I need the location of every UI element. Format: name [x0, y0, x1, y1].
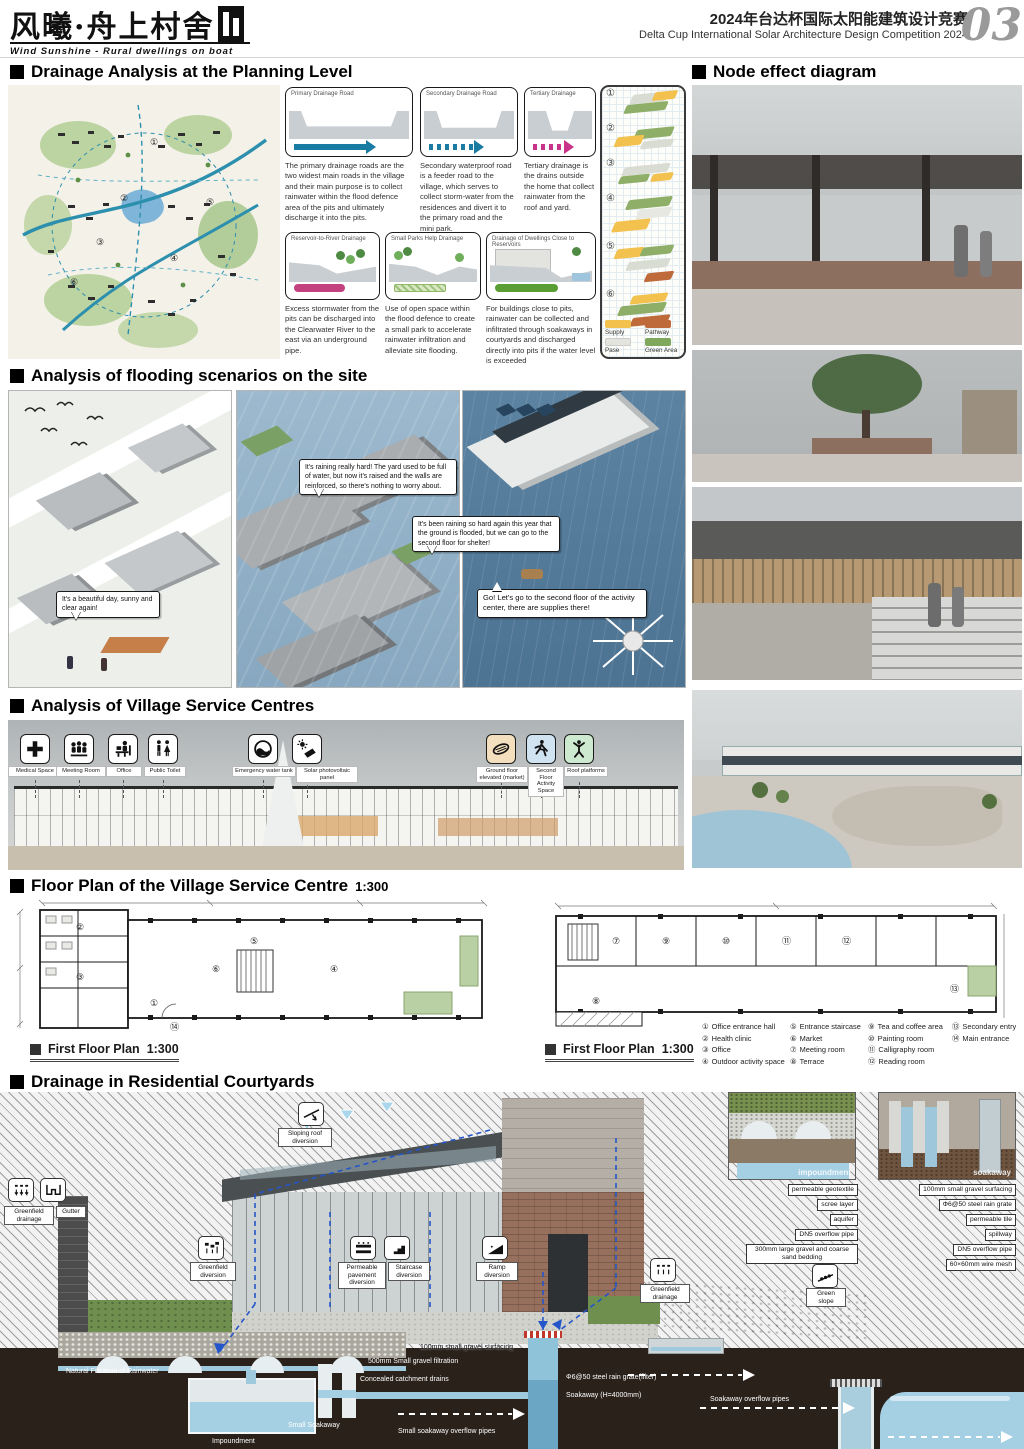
title-square-icon [10, 369, 24, 383]
strip-legend: Supply Pathway Pase Green Area [605, 320, 681, 354]
public-toilet-icon [148, 734, 178, 764]
drainage-layers-strip: ① ② ③ ④ ⑤ ⑥ Supply Pathway [600, 85, 686, 359]
card-secondary-drainage: Secondary Drainage Road Secondary waterp… [420, 87, 518, 234]
dashed-pink-arrow [533, 144, 565, 150]
logo-chinese: 风曦·舟上村舍 [10, 2, 214, 46]
building-logo-icon [218, 6, 244, 42]
node-photo-pergola [692, 85, 1022, 345]
svg-text:⑧: ⑧ [592, 996, 600, 1006]
speech-bubble-flooded: It's been raining so hard again this yea… [412, 516, 560, 552]
speech-bubble-sunny: It's a beautiful day, sunny and clear ag… [56, 591, 160, 618]
emergency-water-tank-icon [248, 734, 278, 764]
meeting-room-icon [64, 734, 94, 764]
diagram-tertiary: Tertiary Drainage [524, 87, 596, 157]
label-small-soakaway: Small Soakaway [288, 1422, 340, 1429]
person-figure [67, 656, 73, 669]
greenfield-diversion-icon [198, 1236, 224, 1260]
greenfield-drainage-icon [8, 1178, 34, 1202]
card-tertiary-drainage: Tertiary Drainage Tertiary drainage is t… [524, 87, 596, 213]
office-icon [108, 734, 138, 764]
svg-text:⑨: ⑨ [662, 936, 670, 946]
icon-label: Second Floor Activity Space [528, 766, 564, 797]
boat-shape [521, 569, 543, 579]
label-concealed-drains: Concealed catchment drains [360, 1376, 449, 1383]
plan-legend-col-2: ⑤Entrance staircase ⑥Market ⑦Meeting roo… [790, 1022, 861, 1067]
label-greenfield-drainage: Greenfield drainage [4, 1206, 54, 1225]
ground-floor-elevated-icon [486, 734, 516, 764]
inset-impoundment-labels: permeable geotextile scree layer aquifer… [700, 1184, 858, 1264]
label-gravel-filtration: 500mm Small gravel filtration [368, 1358, 458, 1365]
label-green-slope: Green slope [806, 1288, 846, 1307]
diagram-reservoir-river: Reservoir-to-River Drainage [285, 232, 380, 300]
village-drainage-map: ① ② ③ ④ ⑤ ⑥ [8, 85, 280, 359]
label-impoundment: Impoundment [212, 1438, 255, 1445]
section-title-courtyards: Drainage in Residential Courtyards [10, 1072, 314, 1092]
competition-title-cn: 2024年台达杯国际太阳能建筑设计竞赛 [639, 8, 968, 29]
diagram-secondary-road: Secondary Drainage Road [420, 87, 518, 157]
roof-platforms-icon [564, 734, 594, 764]
map-marker: ③ [96, 237, 104, 248]
section-title-drainage: Drainage Analysis at the Planning Level [10, 62, 353, 82]
competition-title: 2024年台达杯国际太阳能建筑设计竞赛 Delta Cup Internatio… [639, 8, 968, 41]
icon-label: Roof platforms [564, 766, 608, 777]
permeable-pavement-icon [350, 1236, 376, 1260]
medical-space-icon [20, 734, 50, 764]
birds-icon [17, 397, 137, 457]
label-overflow-pipes: Soakaway overflow pipes [710, 1396, 789, 1403]
road-section-shape [424, 111, 514, 139]
node-photo-courtyard-tree [692, 350, 1022, 482]
icon-label: Meeting Room [56, 766, 106, 777]
svg-text:⑤: ⑤ [250, 936, 258, 946]
plan-label-left: First Floor Plan 1:300 [30, 1042, 179, 1062]
person-figure [101, 658, 107, 671]
card-text: Excess stormwater from the pits can be d… [285, 304, 380, 356]
terrain-shape [289, 254, 376, 282]
competition-title-en: Delta Cup International Solar Architectu… [639, 29, 968, 41]
logo-english: Wind Sunshine - Rural dwellings on boat [10, 42, 250, 57]
icon-label: Solar photovoltaic panel [296, 766, 358, 783]
diagram-dwellings: Drainage of Dwellings Close to Reservoir… [486, 232, 596, 300]
svg-text:⑪: ⑪ [782, 936, 791, 946]
svg-text:④: ④ [330, 964, 338, 974]
water-shape [572, 273, 590, 281]
card-text: The primary drainage roads are the two w… [285, 161, 413, 224]
section-title-floorplan: Floor Plan of the Village Service Centre… [10, 876, 388, 896]
section-title-node: Node effect diagram [692, 62, 876, 82]
first-floor-plan-right: ⑦ ⑨ ⑩ ⑪ ⑫ ⑧ ⑬ [538, 900, 1014, 1040]
svg-text:⑬: ⑬ [950, 984, 959, 994]
hatched-green-bar [394, 284, 446, 292]
card-text: Tertiary drainage is the drains outside … [524, 161, 596, 213]
icon-label: Ground floor elevated (market) [476, 766, 528, 783]
inset-impoundment-detail: impoundment [728, 1092, 856, 1180]
card-small-parks: Small Parks Help Drainage Use of open sp… [385, 232, 481, 356]
icon-label: Emergency water tank [232, 766, 296, 777]
card-dwellings-reservoirs: Drainage of Dwellings Close to Reservoir… [486, 232, 596, 367]
map-marker: ① [150, 137, 158, 148]
title-square-icon [10, 1075, 24, 1089]
card-reservoir-river: Reservoir-to-River Drainage Excess storm… [285, 232, 380, 356]
solid-blue-arrow [294, 144, 367, 150]
node-photo-aerial [692, 690, 1022, 868]
title-square-icon [10, 65, 24, 79]
inset-soakaway-labels: 100mm small gravel surfacing Φ6@50 steel… [858, 1184, 1016, 1271]
plan-label-right: First Floor Plan 1:300 [545, 1042, 694, 1062]
svg-text:⑭: ⑭ [170, 1022, 179, 1032]
title-square-icon [10, 699, 24, 713]
node-photo-stairs [692, 487, 1022, 680]
label-small-overflow: Small soakaway overflow pipes [398, 1428, 495, 1435]
header: 风曦·舟上村舍 Wind Sunshine - Rural dwellings … [0, 0, 1024, 58]
green-slope-icon [812, 1264, 838, 1288]
svg-text:⑩: ⑩ [722, 936, 730, 946]
svg-text:③: ③ [76, 972, 84, 982]
plan-scale: 1:300 [355, 879, 388, 894]
title-square-icon [10, 879, 24, 893]
flood-panel-sunny [8, 390, 232, 688]
speech-bubble-go: Go! Let's go to the second floor of the … [477, 589, 647, 618]
ramp-icon [482, 1236, 508, 1260]
plan-legend-col-1: ①Office entrance hall ②Health clinic ③Of… [702, 1022, 785, 1067]
staircase-icon [384, 1236, 410, 1260]
card-primary-drainage: Primary Drainage Road The primary draina… [285, 87, 413, 224]
speech-bubble-raining: It's raining really hard! The yard used … [299, 459, 457, 495]
section-title-service: Analysis of Village Service Centres [10, 696, 314, 716]
label-staircase: Staircase diversion [388, 1262, 430, 1281]
gutter-icon [40, 1178, 66, 1202]
map-marker: ② [120, 193, 128, 204]
inset-soakaway-detail: soakaway [878, 1092, 1016, 1180]
diagram-small-parks: Small Parks Help Drainage [385, 232, 481, 300]
label-soakaway-h: Soakaway (H=4000mm) [566, 1392, 641, 1399]
label-natural-filtration: Natural Filtration of Rainwater [66, 1368, 159, 1375]
icon-label: Office [106, 766, 142, 777]
label-permeable: Permeable pavement diversion [338, 1262, 386, 1289]
card-text: Use of open space within the flood defen… [385, 304, 481, 356]
map-marker: ⑥ [70, 277, 78, 288]
solar-panel-icon [292, 734, 322, 764]
page-number: 03 [961, 0, 1022, 51]
sloping-roof-icon [298, 1102, 324, 1126]
map-marker: ④ [170, 253, 178, 264]
svg-text:⑦: ⑦ [612, 936, 620, 946]
greenfield-drainage-right-icon [650, 1258, 676, 1282]
card-text: Secondary waterproof road is a feeder ro… [420, 161, 518, 234]
label-greenfield-diversion: Greenfield diversion [190, 1262, 236, 1281]
road-section-shape [528, 111, 592, 139]
label-gutter: Gutter [56, 1206, 86, 1218]
title-square-icon [692, 65, 706, 79]
map-marker: ⑤ [206, 197, 214, 208]
plan-legend-col-3: ⑨Tea and coffee area ⑩Painting room ⑪Cal… [868, 1022, 943, 1067]
poster-page: 风曦·舟上村舍 Wind Sunshine - Rural dwellings … [0, 0, 1024, 1449]
plan-legend-col-4: ⑬Secondary entry ⑭Main entrance [952, 1022, 1016, 1043]
dashed-blue-arrow [429, 144, 475, 150]
svg-text:①: ① [150, 998, 158, 1008]
icon-label: Medical Space [8, 766, 62, 777]
green-bar [495, 284, 558, 292]
svg-text:⑫: ⑫ [842, 936, 851, 946]
svg-text:②: ② [76, 922, 84, 932]
card-text: For buildings close to pits, rainwater c… [486, 304, 596, 367]
icon-label: Public Toilet [144, 766, 186, 777]
section-title-flooding: Analysis of flooding scenarios on the si… [10, 366, 367, 386]
label-sloping-roof: Sloping roof diversion [278, 1128, 332, 1147]
svg-text:⑥: ⑥ [212, 964, 220, 974]
label-rain-grate: Φ6@50 steel rain grate(filter) [566, 1374, 657, 1381]
road-section-shape [289, 111, 409, 139]
first-floor-plan-left: ① ② ③ ④ ⑤ ⑥ ⑭ [12, 896, 520, 1043]
label-gravel-surfacing: 100mm small gravel surfacing [420, 1344, 513, 1351]
pink-bar [294, 284, 345, 292]
diagram-primary-road: Primary Drainage Road [285, 87, 413, 157]
label-greenfield-drainage-right: Greenfield drainage [640, 1284, 690, 1303]
label-ramp: Ramp diversion [476, 1262, 518, 1281]
second-floor-activity-icon [526, 734, 556, 764]
